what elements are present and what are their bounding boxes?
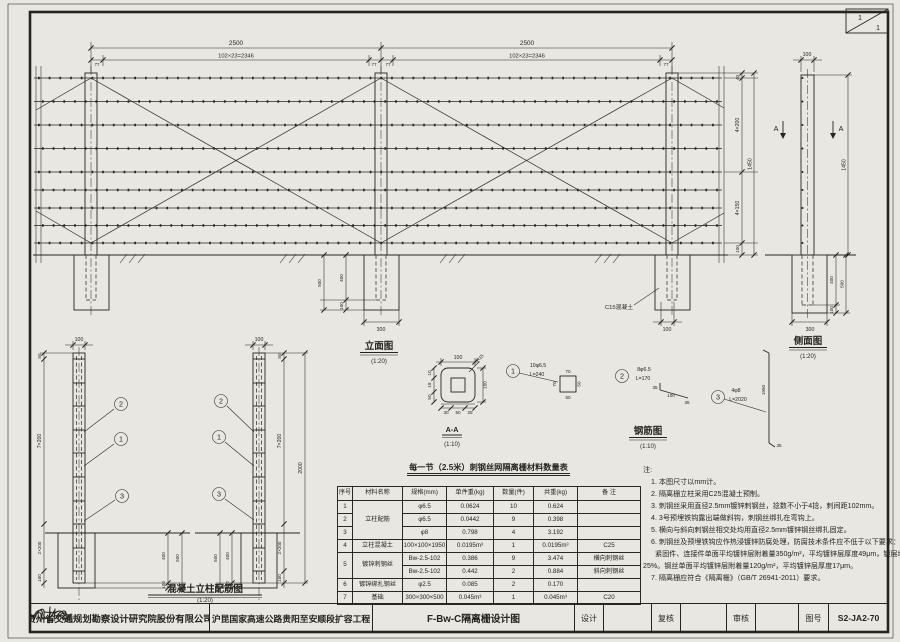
cell: 4 bbox=[338, 540, 353, 553]
cell: 0.386 bbox=[447, 553, 494, 566]
rebar3-spec: 4φ8 bbox=[731, 388, 740, 394]
note-line: 3. 刺钢丝采用直径2.5mm镀锌刺钢丝，捻数不小于4捻，刺间距102mm。 bbox=[643, 500, 889, 512]
side-wire-dots bbox=[802, 77, 804, 244]
elevation-foundation-dims: 400 500 100 300 100 C15混凝土 bbox=[317, 252, 682, 333]
dim-wirespan-2: 102×23=2346 bbox=[509, 54, 545, 60]
elevation-title-text: 立面图 bbox=[365, 340, 394, 352]
dim-buried-width: 100 bbox=[663, 327, 672, 333]
callout-b-2: 2 bbox=[219, 397, 223, 406]
side-view-dims: 100 1450 400 500 100 300 bbox=[789, 52, 852, 333]
dim-fwidth: 300 bbox=[377, 327, 386, 333]
col-qty: 数量(件) bbox=[494, 487, 534, 501]
cell: 3.192 bbox=[534, 527, 578, 540]
figno-label: 图号 bbox=[799, 604, 829, 632]
post-detail-a: 100 50 7×200 2×200 100 400 500 100 2 1 3 bbox=[37, 337, 190, 600]
side-scale: (1:20) bbox=[800, 354, 816, 360]
ground-and-foundations bbox=[33, 254, 728, 310]
rebar2-dc: 35 bbox=[684, 400, 690, 405]
dim-wirespan-1: 102×23=2346 bbox=[218, 54, 254, 60]
cell: Bw-2.5-102 bbox=[403, 566, 447, 579]
section-aa-title: A-A bbox=[446, 425, 459, 434]
rebar3-dmain: 1950 bbox=[761, 384, 766, 395]
cell: 镀锌刺钢丝 bbox=[353, 553, 403, 579]
note-line: 6. 刺钢丝及预埋铁钩应作热浸镀锌防腐处理，防腐技术条件应不低于以下要求： bbox=[643, 536, 889, 548]
dim-detailA-fpost: 400 bbox=[161, 552, 166, 560]
cell: Bw-2.5-102 bbox=[403, 553, 447, 566]
cell: 0.624 bbox=[534, 501, 578, 514]
dim-side-height: 1450 bbox=[842, 159, 848, 171]
dim-above-ground: 1450 bbox=[748, 158, 754, 170]
post-detail-title-text: 混凝土立柱配筋图 bbox=[167, 583, 243, 595]
material-table: 序号 材料名称 规格(mm) 单件重(kg) 数量(件) 共重(kg) 备 注 … bbox=[337, 486, 641, 605]
dim-detailA-funder: 100 bbox=[161, 581, 166, 589]
cell: 4 bbox=[494, 527, 534, 540]
rebar-scale: (1:10) bbox=[640, 444, 656, 450]
elevation-top-dims: 2500 2500 102×23=2346 102×23=2346 77 77 … bbox=[88, 40, 674, 73]
dim-detailB-fpost: 400 bbox=[225, 552, 230, 560]
notes-label: 注: bbox=[643, 464, 889, 476]
cell bbox=[578, 579, 641, 592]
cell: 9 bbox=[494, 514, 534, 527]
post-detail-b: 100 50 7×200 2×200 100 2000 400 500 100 … bbox=[195, 337, 308, 600]
rebar1-dleft: 70 bbox=[552, 381, 557, 387]
cell: 0.0195m³ bbox=[447, 540, 494, 553]
cell: C25 bbox=[578, 540, 641, 553]
dim-topgap: 40 bbox=[735, 74, 740, 80]
section-mark-a-left: A bbox=[774, 124, 779, 133]
cell: 9 bbox=[494, 553, 534, 566]
dim-fpost: 400 bbox=[339, 274, 344, 282]
table-row: 5 镀锌刺钢丝 Bw-2.5-102 0.386 9 3.474 横向刺钢丝 bbox=[338, 553, 641, 566]
cell: 5 bbox=[338, 553, 353, 579]
cell: 2 bbox=[494, 579, 534, 592]
rebar1-len: L=240 bbox=[530, 372, 545, 378]
dim-detailA-fdepth: 500 bbox=[175, 554, 180, 562]
callouts-a: 2 1 3 bbox=[84, 398, 129, 522]
cell: φ6.5 bbox=[403, 514, 447, 527]
section-mark-a-right: A bbox=[839, 124, 844, 133]
rebar1-dright: 50 bbox=[577, 381, 582, 387]
col-remark: 备 注 bbox=[578, 487, 641, 501]
dim-detailB-buried: 2×200 bbox=[277, 541, 282, 554]
col-seq: 序号 bbox=[338, 487, 353, 501]
dim-span-1: 2500 bbox=[229, 40, 244, 47]
table-row: 1 立柱配筋 φ6.5 0.0624 10 0.624 bbox=[338, 501, 641, 514]
table-header-row: 序号 材料名称 规格(mm) 单件重(kg) 数量(件) 共重(kg) 备 注 bbox=[338, 487, 641, 501]
note-line: 1. 本图尺寸以mm计。 bbox=[643, 476, 889, 488]
drawing-sheet: 1 1 bbox=[0, 0, 900, 642]
callout-b-3: 3 bbox=[217, 490, 221, 499]
dim-fdepth: 500 bbox=[317, 279, 322, 287]
rebar2-spec: 8φ6.5 bbox=[637, 367, 651, 373]
callout-b-1: 1 bbox=[217, 433, 221, 442]
note-line: 25%。钢丝单面平均镀锌层附着量120g/m²，平均镀锌层厚度17μm。 bbox=[643, 560, 889, 572]
cell: 0.798 bbox=[447, 527, 494, 540]
drawing-title: F-Bw-C隔离栅设计图 bbox=[373, 604, 575, 632]
sheet-number-top: 1 bbox=[858, 13, 862, 22]
dim-aa-left3: 50 bbox=[427, 394, 432, 400]
notes-block: 注: 1. 本图尺寸以mm计。 2. 隔离栅立柱采用C25混凝土预制。 3. 刺… bbox=[643, 464, 889, 584]
dim-aa-bottom1: 30 bbox=[443, 410, 449, 415]
dim-offset-1: 77 bbox=[94, 62, 100, 67]
sheet-number-bottom: 1 bbox=[876, 23, 880, 32]
title-block: 贵州省交通规划勘察设计研究院股份有限公司 沪昆国家高速公路贵阳至安顺段扩容工程 … bbox=[30, 603, 888, 632]
rebar2-len: L=170 bbox=[636, 376, 651, 382]
elevation-scale: (1:20) bbox=[371, 359, 387, 365]
cell: 10 bbox=[494, 501, 534, 514]
dim-upper-wires: 4×200 bbox=[735, 118, 741, 133]
project-name: 沪昆国家高速公路贵阳至安顺段扩容工程 bbox=[210, 604, 373, 632]
dim-detailA-pw: 100 bbox=[75, 337, 84, 343]
dim-detailB-fdepth: 500 bbox=[213, 554, 218, 562]
cell: 0.442 bbox=[447, 566, 494, 579]
elevation-right-dims: 40 4×200 4×150 100 1450 bbox=[678, 70, 758, 257]
dim-detailA-buried: 2×200 bbox=[37, 541, 42, 554]
dim-detailB-total: 2000 bbox=[298, 462, 304, 474]
note-line: 紧固件、连接件单面平均镀锌层附着量350g/m²，平均镀锌层厚度49μm，镀层均… bbox=[643, 548, 889, 560]
cell: 0.0624 bbox=[447, 501, 494, 514]
dim-detailA-bottom: 100 bbox=[37, 574, 42, 582]
material-table-title: 每一节（2.5米）刺钢丝网隔离栅材料数量表 bbox=[337, 461, 640, 473]
design-label: 设计 bbox=[575, 604, 604, 632]
break-marks bbox=[36, 66, 724, 263]
callout-a-3: 3 bbox=[120, 492, 124, 501]
rebar2-db: 100 bbox=[667, 393, 675, 398]
review-label: 审核 bbox=[727, 604, 756, 632]
note-line: 7. 隔离栅应符合《隔离栅》（GB/T 26941-2011）要求。 bbox=[643, 572, 889, 584]
cell: 0.884 bbox=[534, 566, 578, 579]
rebar1-dbottom: 50 bbox=[565, 395, 571, 400]
dim-detailB-upper: 7×200 bbox=[277, 434, 283, 449]
dim-detailA-top: 50 bbox=[37, 353, 42, 359]
cell: φ8 bbox=[403, 527, 447, 540]
rebar-figure: 1 10φ6.5 L=240 70 50 50 70 2 8φ6.5 L=170… bbox=[507, 350, 782, 450]
dim-side-postwidth: 100 bbox=[803, 52, 812, 58]
rebar3-dend: 35 bbox=[776, 443, 782, 448]
dim-lower-wires: 4×150 bbox=[735, 201, 741, 216]
review-signature bbox=[756, 604, 799, 632]
section-cut-marks: A A bbox=[774, 121, 844, 139]
dim-aa-left2: 18 bbox=[427, 382, 432, 388]
cell: 立柱配筋 bbox=[353, 501, 403, 540]
col-material: 材料名称 bbox=[353, 487, 403, 501]
col-spec: 规格(mm) bbox=[403, 487, 447, 501]
callouts-b: 2 1 3 bbox=[213, 395, 255, 521]
cell: 2 bbox=[338, 514, 353, 527]
rebar1-spec: 10φ6.5 bbox=[530, 363, 546, 369]
dim-detailB-pw: 100 bbox=[255, 337, 264, 343]
cell bbox=[578, 501, 641, 514]
table-row: 4 立柱混凝土 100×100×1950 0.0195m³ 1 0.0195m³… bbox=[338, 540, 641, 553]
cell: 3 bbox=[338, 527, 353, 540]
dim-aa-radius: R15 bbox=[475, 353, 485, 363]
c15-concrete-label: C15混凝土 bbox=[605, 303, 633, 311]
dim-side-fwidth: 300 bbox=[806, 327, 815, 333]
side-view: A A 100 1450 400 500 100 300 bbox=[765, 52, 856, 360]
cell: 3.474 bbox=[534, 553, 578, 566]
dim-funder: 100 bbox=[339, 302, 344, 310]
callout-a-2: 2 bbox=[119, 400, 123, 409]
cell: 斜向刺钢丝 bbox=[578, 566, 641, 579]
rebar-title-text: 钢筋图 bbox=[634, 425, 663, 437]
cell: 立柱混凝土 bbox=[353, 540, 403, 553]
col-unitweight: 单件重(kg) bbox=[447, 487, 494, 501]
cell: 6 bbox=[338, 579, 353, 592]
barbed-wires bbox=[34, 78, 722, 243]
recheck-label: 复核 bbox=[652, 604, 681, 632]
cell: 0.0442 bbox=[447, 514, 494, 527]
cell: φ6.5 bbox=[403, 501, 447, 514]
dim-aa-left1: 10 bbox=[427, 370, 432, 376]
rebar2-da: 35 bbox=[652, 385, 658, 390]
dim-detailB-top: 50 bbox=[277, 353, 282, 359]
note-line: 4. 3号预埋铁钩露出端做斜钩，刺钢丝绑扎在弯钩上。 bbox=[643, 512, 889, 524]
section-aa: 100 R15 100 10 18 50 30 50 25 A-A (1:10) bbox=[427, 353, 488, 448]
cell: 0.170 bbox=[534, 579, 578, 592]
table-row: 6 镀锌绑扎钢丝 φ2.5 0.085 2 0.170 bbox=[338, 579, 641, 592]
recheck-signature bbox=[681, 604, 727, 632]
dim-offset-2a: 77 bbox=[371, 62, 377, 67]
elevation-view: 2500 2500 102×23=2346 102×23=2346 77 77 … bbox=[33, 40, 758, 365]
col-totalweight: 共重(kg) bbox=[534, 487, 578, 501]
note-line: 5. 横向与斜向刺钢丝相交处均用直径2.5mm镀锌钢丝绑扎固定。 bbox=[643, 524, 889, 536]
elevation-title: 立面图 (1:20) bbox=[360, 340, 398, 365]
dim-detailA-upper: 7×200 bbox=[37, 434, 43, 449]
cell: φ2.5 bbox=[403, 579, 447, 592]
dim-aa-bottom2: 50 bbox=[455, 410, 461, 415]
note-line: 2. 隔离栅立柱采用C25混凝土预制。 bbox=[643, 488, 889, 500]
rebar2-no: 2 bbox=[620, 372, 624, 381]
cell: 0.085 bbox=[447, 579, 494, 592]
callout-a-1: 1 bbox=[119, 435, 123, 444]
rebar1-no: 1 bbox=[511, 367, 515, 376]
rebar3-len: L=2020 bbox=[729, 397, 747, 403]
dim-bottomgap: 100 bbox=[735, 245, 740, 253]
cell: 0.398 bbox=[534, 514, 578, 527]
dim-side-fpost: 400 bbox=[829, 276, 834, 284]
dim-detailB-bottom: 100 bbox=[277, 574, 282, 582]
rebar1-dtop: 70 bbox=[565, 369, 571, 374]
cell: 横向刺钢丝 bbox=[578, 553, 641, 566]
cell: 100×100×1950 bbox=[403, 540, 447, 553]
cell bbox=[578, 514, 641, 527]
dim-aa-width: 100 bbox=[454, 355, 463, 361]
cell: 镀锌绑扎钢丝 bbox=[353, 579, 403, 592]
dim-side-fdepth: 500 bbox=[840, 280, 845, 288]
cell: 0.0195m³ bbox=[534, 540, 578, 553]
dim-offset-2b: 77 bbox=[385, 62, 391, 67]
cell: 2 bbox=[494, 566, 534, 579]
rebar3-no: 3 bbox=[716, 393, 720, 402]
dim-span-2: 2500 bbox=[520, 40, 535, 47]
side-title-text: 侧面图 bbox=[794, 335, 823, 347]
dim-aa-height: 100 bbox=[483, 381, 488, 389]
cell: 1 bbox=[338, 501, 353, 514]
side-view-title: 侧面图 (1:20) bbox=[789, 335, 827, 360]
section-aa-scale: (1:10) bbox=[444, 442, 460, 448]
figure-number: S2-JA2-70 bbox=[829, 604, 888, 632]
design-signature bbox=[604, 604, 652, 632]
dim-offset-3: 77 bbox=[663, 62, 669, 67]
cell bbox=[578, 527, 641, 540]
dim-side-funder: 100 bbox=[829, 306, 834, 314]
cell: 1 bbox=[494, 540, 534, 553]
dim-aa-bott om3: 25 bbox=[467, 410, 473, 415]
